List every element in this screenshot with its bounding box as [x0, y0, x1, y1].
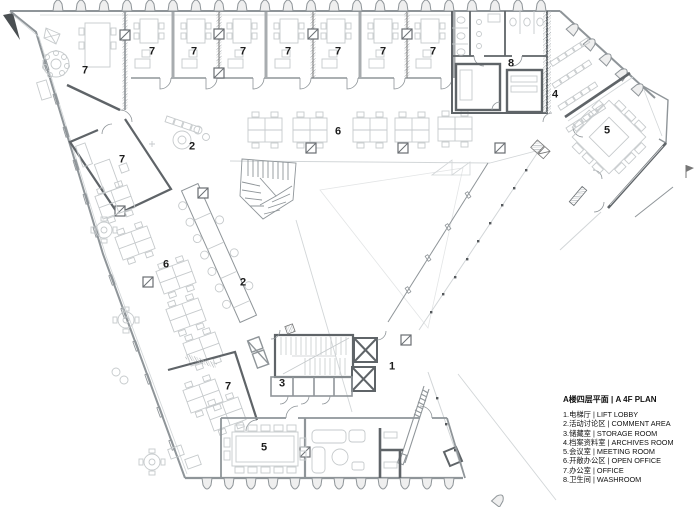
- legend-item-lift-lobby: 1.电梯厅 | LIFT LOBBY: [563, 410, 698, 419]
- facade-columns-bottom: [202, 478, 454, 489]
- room7-bottom: [168, 352, 257, 437]
- legend-item-comment-area: 2.活动讨论区 | COMMENT AREA: [563, 419, 698, 428]
- facade-columns-top: [53, 0, 546, 11]
- left-wing: [70, 116, 352, 475]
- legend-item-meeting-room: 5.会议室 | MEETING ROOM: [563, 447, 698, 456]
- comment-area-upper: [149, 116, 210, 149]
- floorplan-page: 77777777845276623715 A楼四层平面 | A 4F PLAN …: [0, 0, 700, 507]
- lounge-furniture: [312, 430, 365, 473]
- legend-item-storage-room: 3.储藏室 | STORAGE ROOM: [563, 429, 698, 438]
- washroom: [452, 11, 551, 113]
- legend-title: A楼四层平面 | A 4F PLAN: [563, 394, 698, 405]
- apex-column: [531, 140, 550, 159]
- legend-item-washroom: 8.卫生间 | WASHROOM: [563, 475, 698, 484]
- legend-item-office: 7.办公室 | OFFICE: [563, 466, 698, 475]
- pantry: [380, 428, 403, 478]
- wing-workstations: [91, 179, 225, 475]
- archives-room: [543, 38, 606, 132]
- facade-columns-ne: [566, 21, 646, 96]
- open-office-upper: [248, 111, 505, 153]
- escalator: [397, 386, 429, 465]
- corner-office: [37, 12, 132, 122]
- legend: A楼四层平面 | A 4F PLAN 1.电梯厅 | LIFT LOBBY 2.…: [563, 394, 698, 484]
- legend-item-open-office: 6.开敞办公区 | OPEN OFFICE: [563, 456, 698, 465]
- flag-marker: [686, 165, 694, 178]
- island-counter: [173, 180, 264, 326]
- core: [248, 324, 462, 466]
- band-doors: [160, 78, 452, 89]
- top-office-band: [131, 12, 454, 89]
- office-furniture: [134, 19, 445, 68]
- legend-item-archives-room: 4.档案资料室 | ARCHIVES ROOM: [563, 438, 698, 447]
- conference-table: [224, 425, 306, 473]
- bottom-band: [185, 406, 465, 489]
- mid-stair: [240, 159, 296, 219]
